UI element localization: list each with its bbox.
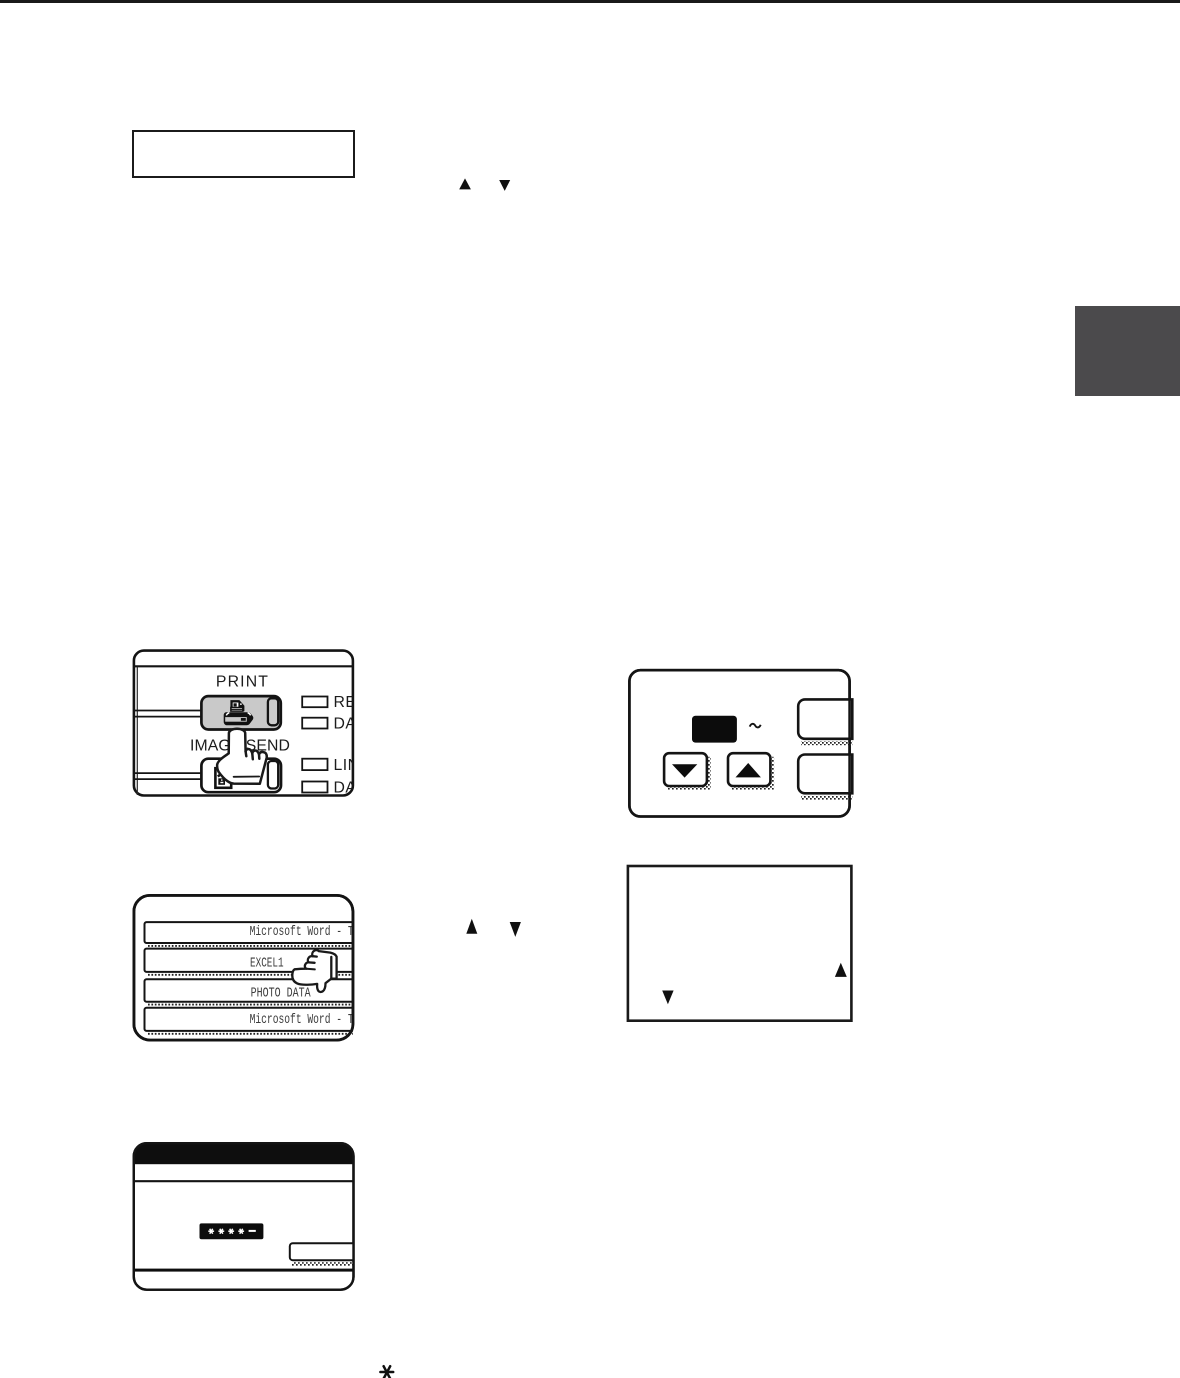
svg-text:PHOTO DATA: PHOTO DATA (251, 986, 312, 1001)
svg-text:EXCEL1: EXCEL1 (250, 957, 284, 972)
svg-text:Microsoft Word - T: Microsoft Word - T (250, 1013, 354, 1028)
svg-text:LINE: LINE (334, 757, 363, 774)
svg-text:PRINT: PRINT (216, 673, 269, 690)
svg-text:DATA: DATA (334, 780, 363, 797)
svg-text:Microsoft Word - T: Microsoft Word - T (250, 925, 354, 940)
svg-text:DATA: DATA (334, 715, 363, 732)
svg-text:READY: READY (334, 694, 363, 711)
